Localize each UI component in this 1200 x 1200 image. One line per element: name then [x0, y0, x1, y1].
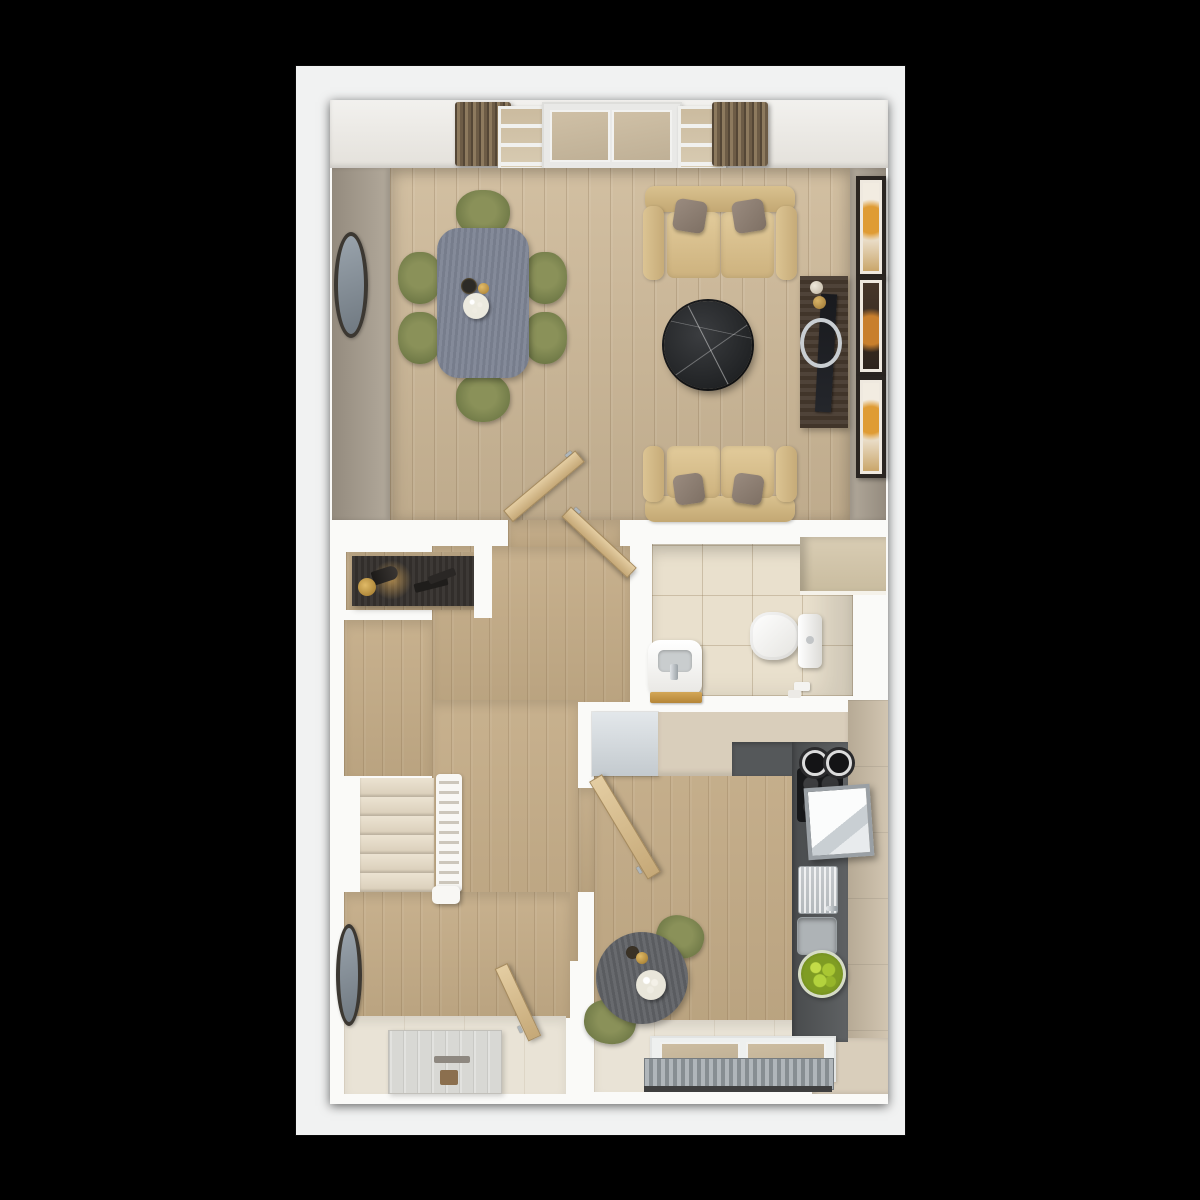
dining-chair-left-1: [398, 252, 442, 304]
kitchen-pot-1: [802, 750, 828, 776]
coffee-table: [664, 301, 752, 389]
sofa-bottom-pillow-1: [672, 472, 706, 506]
sofa-bottom-arm-left: [643, 446, 664, 502]
curtain-right: [712, 102, 768, 166]
frame-art-1: [863, 183, 879, 271]
wc-toilet-bowl: [750, 612, 800, 660]
wc-boxed-duct: [800, 537, 886, 595]
sofa-top-pillow-1: [672, 198, 709, 235]
kitchen-radiator-base: [644, 1086, 832, 1092]
entrance-oval-mirror: [336, 924, 362, 1026]
french-door-pane-left: [550, 110, 610, 162]
stair-newel-post: [432, 886, 460, 904]
frame-art-2: [863, 283, 879, 369]
wc-cistern-button: [806, 636, 814, 644]
wc-wooden-tray: [650, 692, 702, 703]
hall-floor-side: [344, 620, 432, 776]
side-window-left: [498, 106, 546, 170]
sofa-bottom-arm-right: [776, 446, 797, 502]
wc-basin-tap: [670, 664, 678, 680]
wall-frame-2: [856, 276, 886, 376]
stair-step-6: [360, 873, 434, 892]
wall-frame-3: [856, 376, 886, 478]
tv-silver-ring-decor: [800, 318, 842, 368]
tv-unit-decor-gold: [813, 296, 826, 309]
wall-frame-1: [856, 176, 886, 278]
stair-step-1: [360, 778, 434, 797]
kitchen-door-opening: [578, 788, 594, 892]
sofa-top-pillow-2: [731, 198, 768, 235]
dining-chair-left-2: [398, 312, 442, 364]
french-door-pane-right: [612, 110, 672, 162]
table-gold-ball: [478, 283, 489, 294]
french-doors: [542, 102, 682, 170]
kitchen-fridge: [592, 712, 658, 776]
sofa-top-back: [645, 186, 795, 212]
front-door-letterbox: [434, 1056, 470, 1063]
dining-chair-right-2: [523, 312, 567, 364]
sofa-top: [643, 186, 797, 284]
stair-step-5: [360, 854, 434, 873]
table-plate-flowers: [463, 293, 489, 319]
wc-paper-roll-2: [788, 690, 801, 698]
front-door-mat-pad: [440, 1070, 458, 1085]
sofa-bottom-pillow-2: [731, 472, 765, 506]
stair-step-2: [360, 797, 434, 816]
kitchen-pot-2: [826, 750, 852, 776]
kitchen-fruit-bowl: [798, 950, 846, 998]
tv-unit-decor-white: [810, 281, 823, 294]
floorplan-render: [0, 0, 1200, 1200]
sofa-top-arm-right: [776, 206, 797, 280]
round-table-flowers: [636, 970, 666, 1000]
nook-wall-stub: [474, 540, 492, 618]
dining-wall-mirror: [334, 232, 368, 338]
frame-art-3: [863, 383, 879, 471]
kitchen-sink-basin: [798, 918, 836, 954]
dining-chair-right-1: [523, 252, 567, 304]
console-brass-dish: [358, 578, 376, 596]
living-left-wall-face: [332, 168, 390, 520]
sofa-top-arm-left: [643, 206, 664, 280]
staircase: [360, 778, 434, 892]
entrance-floor: [344, 892, 570, 1018]
stair-step-4: [360, 835, 434, 854]
table-vase: [461, 278, 477, 294]
kitchen-sink-faucet: [826, 906, 838, 911]
dining-chair-bottom: [456, 374, 510, 422]
kitchen-tall-cabinets: [848, 700, 888, 1092]
round-table-candle: [636, 952, 648, 964]
stair-balustrade: [436, 774, 462, 892]
stair-step-3: [360, 816, 434, 835]
kitchen-extractor-hood: [804, 784, 875, 860]
sofa-bottom: [643, 442, 797, 522]
sofa-bottom-back: [645, 496, 795, 522]
